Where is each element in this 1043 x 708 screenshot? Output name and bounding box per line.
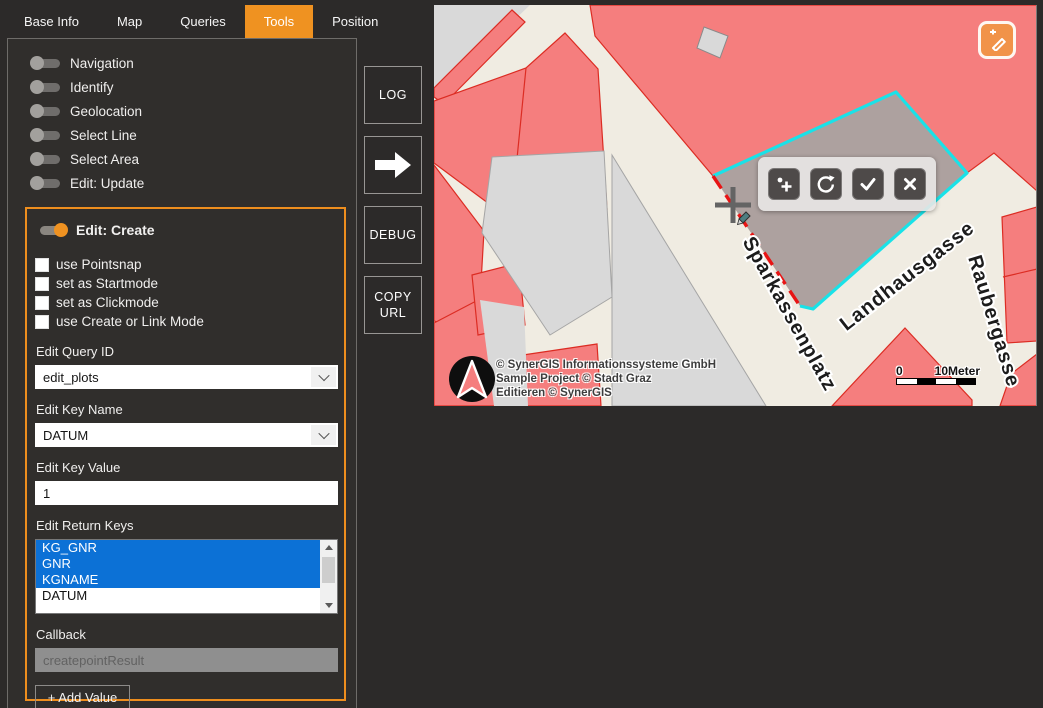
log-button[interactable]: LOG — [364, 66, 422, 124]
toggle-label: Edit: Update — [70, 176, 144, 191]
list-item-datum[interactable]: DATUM — [36, 588, 337, 604]
callback-input — [35, 648, 338, 672]
edit-key-value-label: Edit Key Value — [36, 460, 336, 475]
toggle-off-icon — [30, 176, 62, 190]
toggle-off-icon — [30, 80, 62, 94]
checkbox-use-create-or-link-mode[interactable]: use Create or Link Mode — [35, 312, 336, 331]
group-title: Edit: Create — [76, 222, 155, 238]
tab-position[interactable]: Position — [313, 5, 397, 38]
toggle-off-icon — [30, 104, 62, 118]
edit-create-group: Edit: Create use Pointsnap set as Startm… — [25, 207, 346, 701]
scroll-up-icon[interactable] — [320, 540, 337, 555]
toggle-label: Geolocation — [70, 104, 142, 119]
tab-tools[interactable]: Tools — [245, 5, 313, 38]
list-item-kg-gnr[interactable]: KG_GNR — [36, 540, 337, 556]
edit-pencil-plus-icon — [986, 29, 1008, 51]
chevron-down-icon[interactable] — [311, 425, 336, 445]
edit-query-id-label: Edit Query ID — [36, 344, 336, 359]
toggle-on-icon — [36, 223, 68, 237]
callback-label: Callback — [36, 627, 336, 642]
edit-key-name-select[interactable]: DATUM — [35, 423, 338, 447]
checkbox-label: set as Clickmode — [56, 295, 159, 310]
scroll-down-icon[interactable] — [320, 598, 337, 613]
toggle-label: Select Area — [70, 152, 139, 167]
toggle-off-icon — [30, 128, 62, 142]
tab-map[interactable]: Map — [98, 5, 161, 38]
edit-query-id-select[interactable]: edit_plots — [35, 365, 338, 389]
apply-arrow-button[interactable] — [364, 136, 422, 194]
toggle-select-area[interactable]: Select Area — [30, 147, 356, 171]
action-button-column: LOG DEBUG COPY URL — [364, 66, 422, 346]
checkbox-icon — [35, 258, 49, 272]
app-root: { "colors": { "accent_orange": "#EF9221"… — [0, 0, 1043, 708]
scale-bar: 0 10Meter — [890, 364, 982, 385]
attribution-line: © SynerGIS Informationssysteme GmbH — [496, 358, 716, 372]
map-view[interactable]: Sparkassenplatz Landhausgasse Raubergass… — [434, 5, 1037, 406]
edit-create-options: use Pointsnap set as Startmode set as Cl… — [35, 255, 336, 331]
toggle-edit-update[interactable]: Edit: Update — [30, 171, 356, 195]
checkbox-set-as-clickmode[interactable]: set as Clickmode — [35, 293, 336, 312]
toggle-label: Select Line — [70, 128, 137, 143]
attribution-line: Editieren © SynerGIS — [496, 386, 716, 400]
tab-base-info[interactable]: Base Info — [5, 5, 98, 38]
scale-bar-graphic — [896, 378, 976, 385]
checkbox-label: use Pointsnap — [56, 257, 142, 272]
tools-panel: Navigation Identify Geolocation Select L… — [7, 38, 357, 708]
tab-queries[interactable]: Queries — [161, 5, 245, 38]
checkbox-set-as-startmode[interactable]: set as Startmode — [35, 274, 336, 293]
listbox-scrollbar[interactable] — [320, 540, 337, 613]
toggle-navigation[interactable]: Navigation — [30, 51, 356, 75]
tool-toggle-list: Navigation Identify Geolocation Select L… — [8, 51, 356, 195]
attribution-line: Sample Project © Stadt Graz — [496, 372, 716, 386]
toggle-off-icon — [30, 56, 62, 70]
confirm-button[interactable] — [852, 168, 884, 200]
toggle-off-icon — [30, 152, 62, 166]
toggle-label: Navigation — [70, 56, 134, 71]
debug-button[interactable]: DEBUG — [364, 206, 422, 264]
checkbox-label: use Create or Link Mode — [56, 314, 204, 329]
edit-return-keys-label: Edit Return Keys — [36, 518, 336, 533]
edit-return-keys-listbox[interactable]: KG_GNR GNR KGNAME DATUM — [35, 539, 338, 614]
toggle-geolocation[interactable]: Geolocation — [30, 99, 356, 123]
tab-bar: Base Info Map Queries Tools Position — [5, 5, 397, 38]
edit-key-name-value: DATUM — [35, 428, 311, 443]
add-point-button[interactable] — [768, 168, 800, 200]
toggle-label: Identify — [70, 80, 114, 95]
cancel-button[interactable] — [894, 168, 926, 200]
scale-end-label: 10Meter — [935, 364, 980, 378]
checkbox-icon — [35, 296, 49, 310]
checkbox-use-pointsnap[interactable]: use Pointsnap — [35, 255, 336, 274]
rotate-button[interactable] — [810, 168, 842, 200]
checkbox-icon — [35, 277, 49, 291]
toggle-edit-create[interactable]: Edit: Create — [36, 219, 336, 241]
edit-toolbar — [758, 157, 936, 211]
map-attribution: © SynerGIS Informationssysteme GmbH Samp… — [496, 358, 716, 400]
add-value-button[interactable]: + Add Value — [35, 685, 130, 708]
copy-url-button[interactable]: COPY URL — [364, 276, 422, 334]
edit-create-mode-button[interactable] — [978, 21, 1016, 59]
checkbox-icon — [35, 315, 49, 329]
scale-start-label: 0 — [896, 364, 903, 378]
edit-key-name-label: Edit Key Name — [36, 402, 336, 417]
rotate-icon — [816, 174, 836, 194]
list-item-kgname[interactable]: KGNAME — [36, 572, 337, 588]
checkmark-icon — [858, 174, 878, 194]
edit-key-value-input[interactable] — [35, 481, 338, 505]
list-item-gnr[interactable]: GNR — [36, 556, 337, 572]
arrow-right-icon — [371, 149, 415, 181]
toggle-identify[interactable]: Identify — [30, 75, 356, 99]
close-icon — [900, 174, 920, 194]
chevron-down-icon[interactable] — [311, 367, 336, 387]
checkbox-label: set as Startmode — [56, 276, 158, 291]
add-point-icon — [774, 174, 794, 194]
edit-query-id-value: edit_plots — [35, 370, 311, 385]
toggle-select-line[interactable]: Select Line — [30, 123, 356, 147]
north-arrow-icon — [449, 356, 495, 402]
map-canvas[interactable]: Sparkassenplatz Landhausgasse Raubergass… — [434, 5, 1037, 406]
scrollbar-thumb[interactable] — [322, 557, 335, 583]
